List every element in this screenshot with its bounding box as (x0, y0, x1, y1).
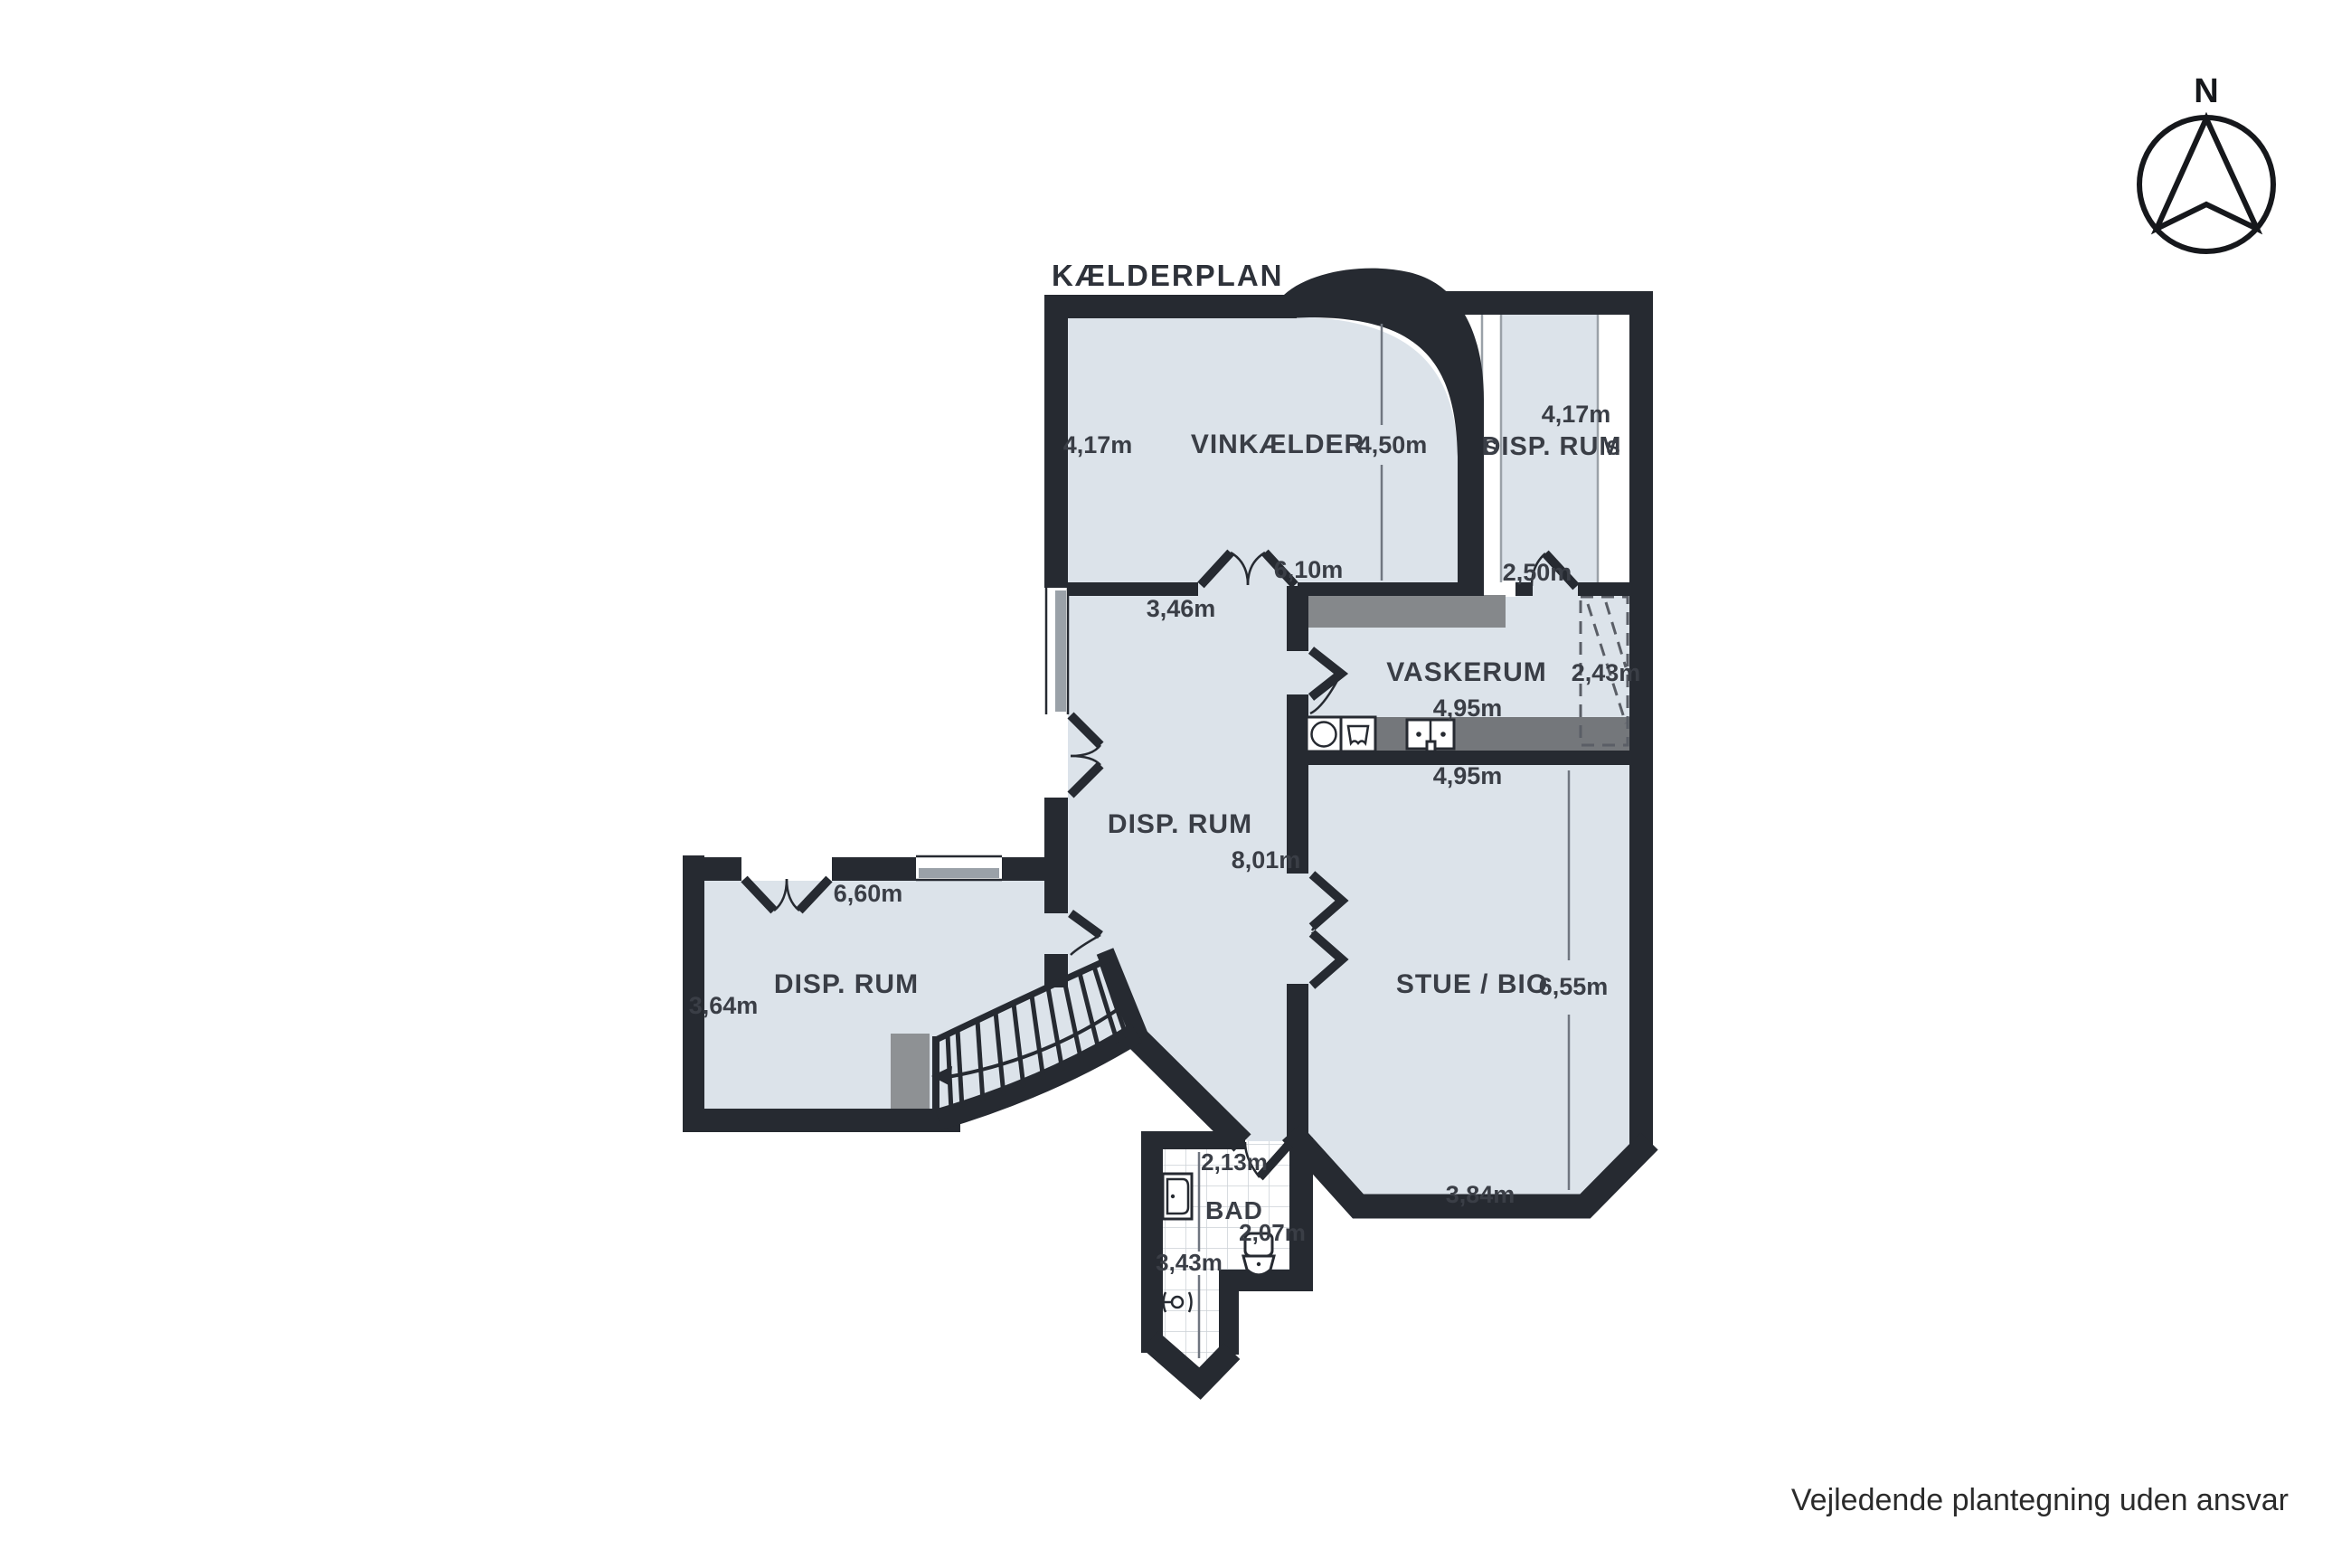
compass-north-label: N (2194, 72, 2218, 110)
measurement-label: 6,55m (1539, 973, 1609, 1000)
room-label: DISP. RUM (774, 969, 919, 999)
laundry-basket-icon (1341, 717, 1375, 751)
room-label: VINKÆLDER (1191, 430, 1364, 459)
chimney-block (891, 1034, 930, 1110)
measurement-label: 8,01m (1232, 846, 1301, 874)
measurement-label: 3,84m (1446, 1181, 1515, 1208)
room-label: VASKERUM (1386, 657, 1546, 687)
measurement-label: 6,10m (1274, 556, 1344, 583)
measurement-label: 2,50m (1503, 559, 1572, 586)
measurement-label: 2,07m (1239, 1219, 1306, 1246)
compass-icon: N (2139, 72, 2273, 251)
window-icon (916, 855, 1002, 881)
measurement-label: 3,46m (1147, 595, 1216, 622)
page-title: KÆLDERPLAN (1052, 259, 1284, 292)
measurement-label: 6,60m (834, 880, 903, 907)
measurement-label: 3,64m (689, 992, 759, 1019)
vaskerum-counter-top (1305, 595, 1506, 628)
sink-icon (1163, 1174, 1192, 1219)
floor-plan-page: KÆLDERPLAN VINKÆLDER 4,17m 4,50m 6,10m 4… (0, 0, 2351, 1568)
measurement-label: 4,50m (1358, 431, 1428, 458)
measurement-label: 4,17m (1542, 401, 1611, 428)
measurement-label: 2,13m (1201, 1148, 1268, 1176)
room-label: DISP. RUM (1108, 809, 1252, 839)
room-label: STUE / BIO (1396, 969, 1548, 999)
double-sink-icon (1407, 720, 1454, 751)
measurement-label: 4,17m (1063, 431, 1133, 458)
closet-mark: S (1484, 436, 1497, 459)
measurement-label: 2,43m (1572, 659, 1641, 686)
measurement-label: 4,95m (1433, 694, 1503, 722)
room-label: DISP. RUM (1481, 432, 1621, 461)
measurement-label: 4,95m (1433, 762, 1503, 789)
compass-needle (2157, 118, 2257, 229)
closet-mark: S (1606, 436, 1619, 459)
measurement-label: 3,43m (1156, 1249, 1223, 1276)
floor-plan-svg: KÆLDERPLAN VINKÆLDER 4,17m 4,50m 6,10m 4… (0, 0, 2351, 1568)
disclaimer-text: Vejledende plantegning uden ansvar (1791, 1483, 2289, 1517)
window-icon (1044, 588, 1069, 714)
